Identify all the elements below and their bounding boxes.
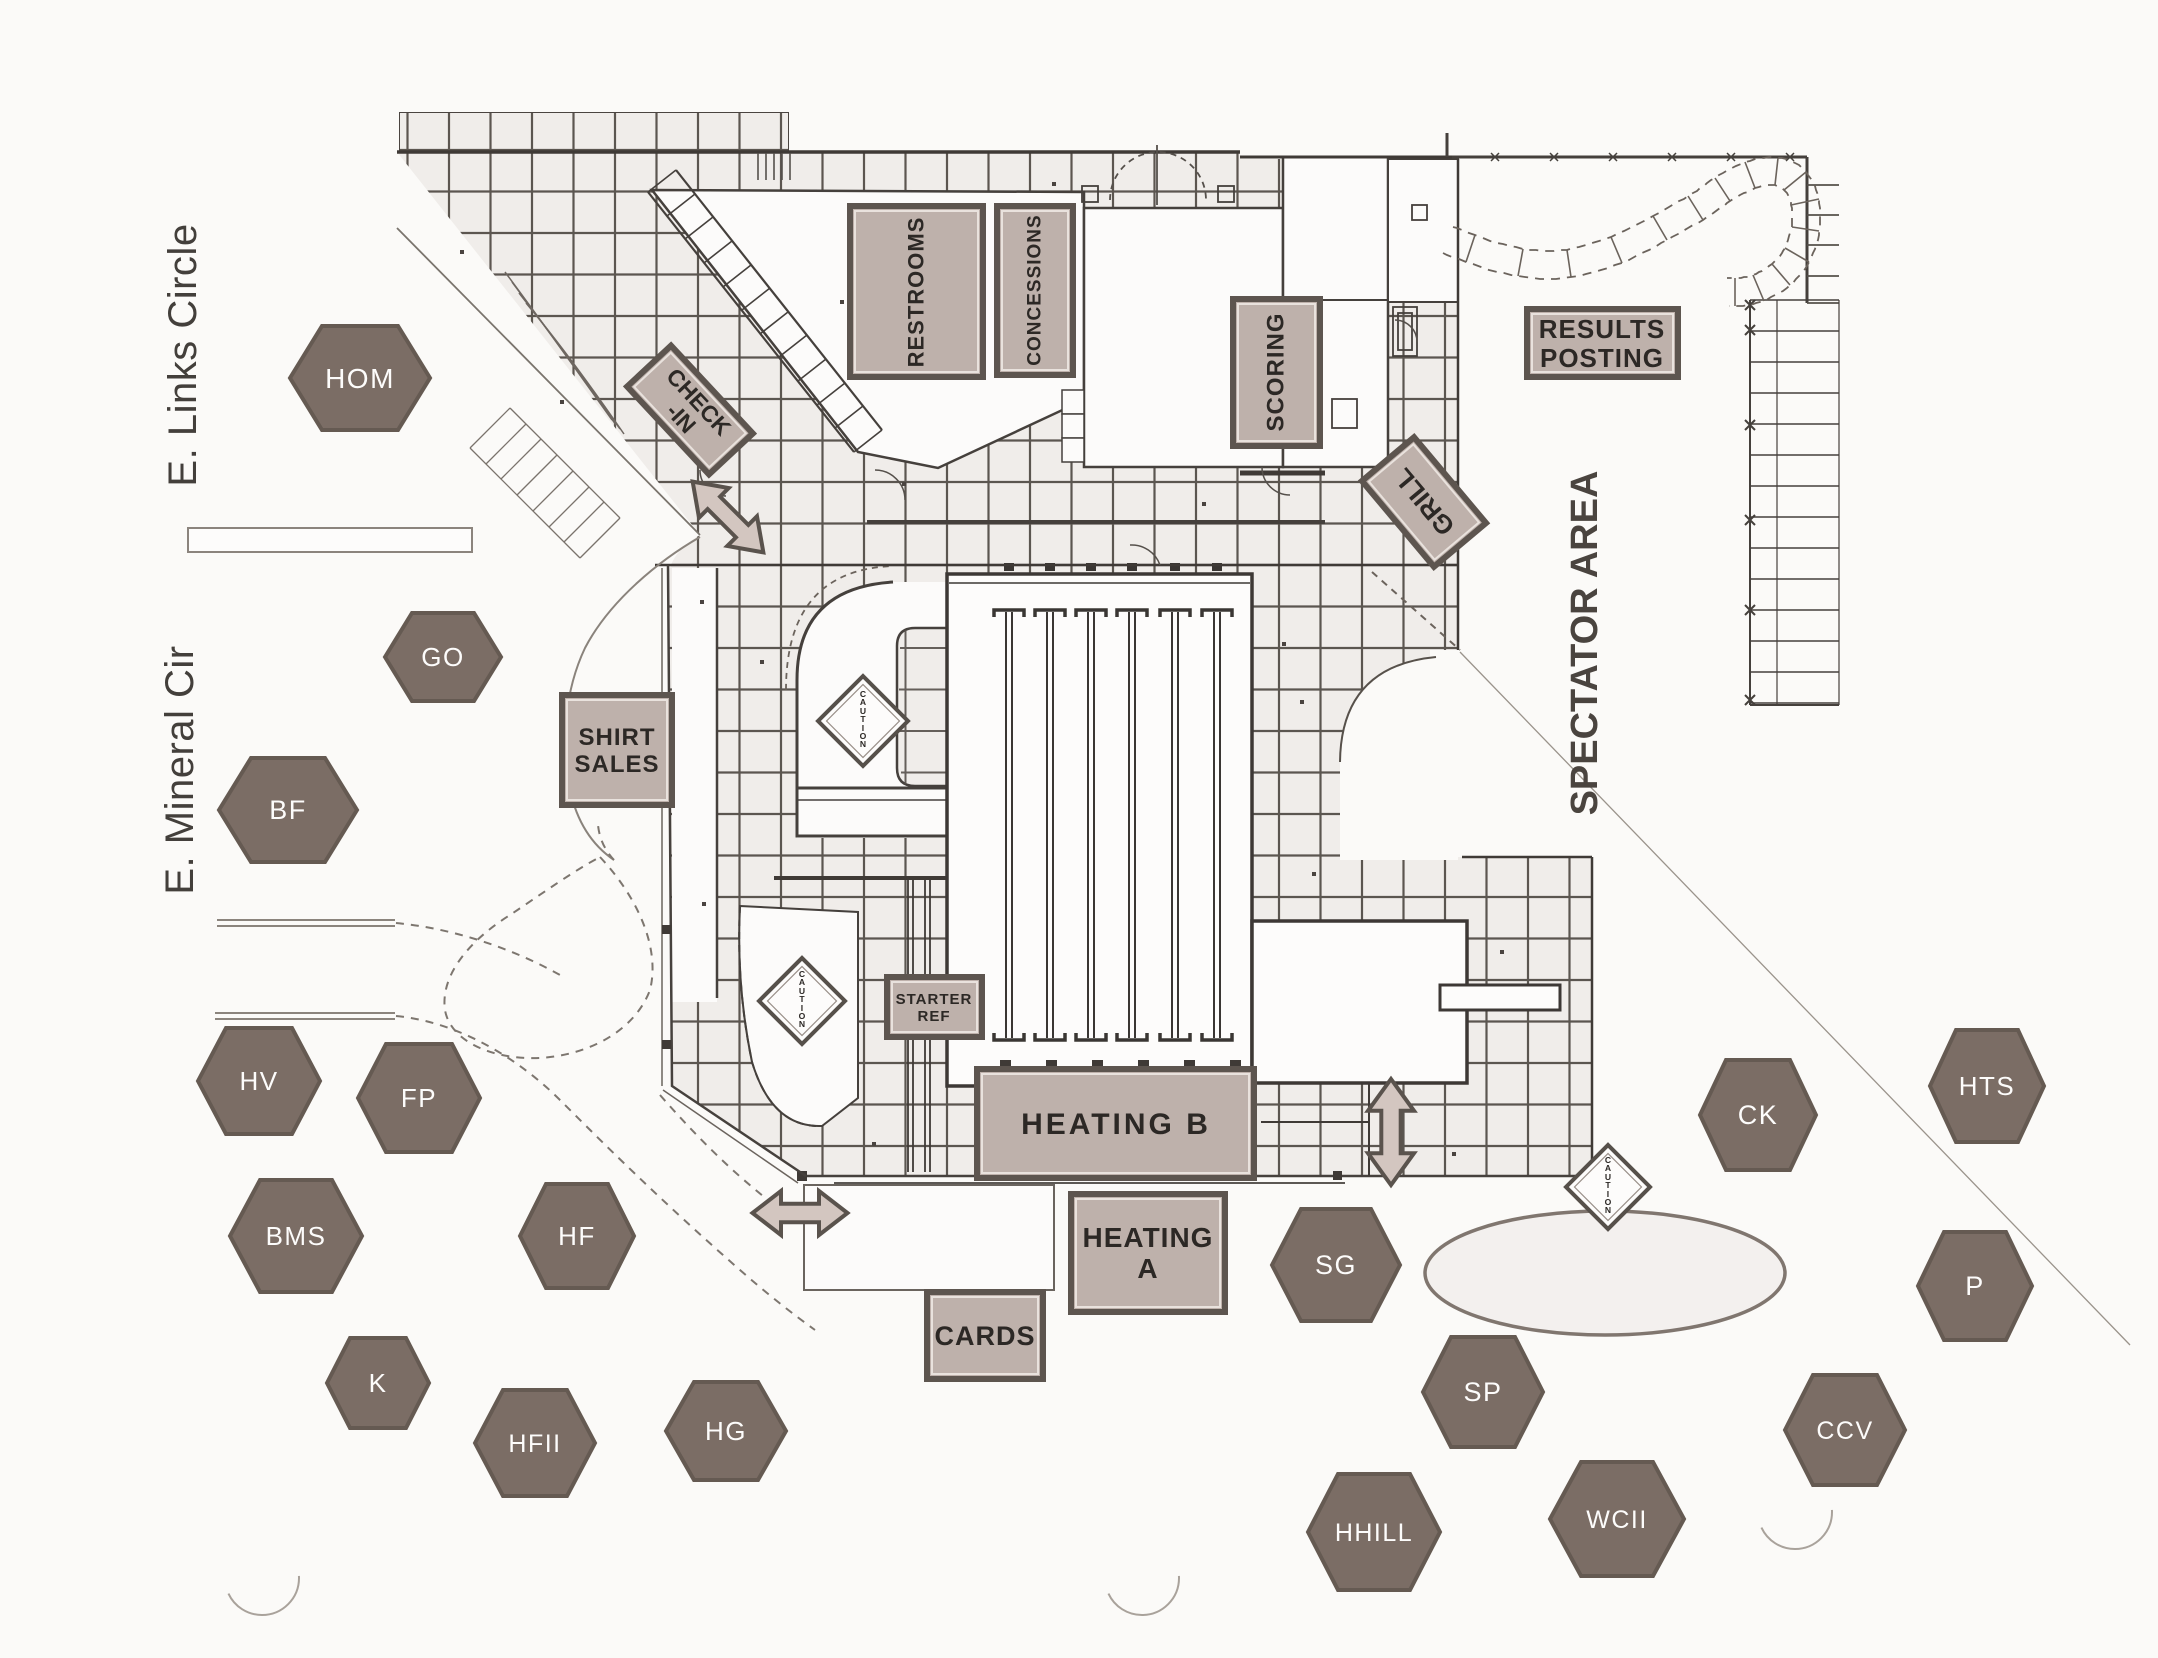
svg-text:HEATING: HEATING (1083, 1222, 1214, 1253)
svg-text:SG: SG (1315, 1250, 1357, 1280)
svg-text:SPECTATOR AREA: SPECTATOR AREA (1564, 471, 1606, 816)
svg-text:N: N (860, 739, 866, 749)
svg-text:CARDS: CARDS (934, 1321, 1035, 1351)
svg-text:HHILL: HHILL (1335, 1519, 1413, 1547)
svg-text:HTS: HTS (1959, 1071, 2016, 1101)
svg-text:SALES: SALES (574, 751, 659, 778)
svg-text:CONCESSIONS: CONCESSIONS (1025, 214, 1046, 365)
svg-text:E. Links Circle: E. Links Circle (161, 223, 205, 486)
svg-text:FP: FP (401, 1083, 437, 1113)
svg-text:SP: SP (1463, 1377, 1502, 1407)
svg-text:A: A (1137, 1253, 1158, 1284)
svg-text:SCORING: SCORING (1263, 312, 1290, 431)
svg-text:P: P (1965, 1271, 1985, 1301)
svg-text:RESULTS: RESULTS (1539, 314, 1665, 344)
svg-text:HFII: HFII (508, 1430, 561, 1458)
svg-text:HF: HF (558, 1221, 596, 1251)
svg-text:K: K (369, 1368, 388, 1398)
svg-text:POSTING: POSTING (1540, 343, 1664, 373)
svg-text:HEATING B: HEATING B (1021, 1108, 1211, 1141)
svg-text:SHIRT: SHIRT (579, 724, 656, 751)
svg-text:HG: HG (705, 1416, 747, 1446)
svg-text:HV: HV (239, 1066, 278, 1096)
svg-text:N: N (799, 1019, 805, 1029)
svg-text:CK: CK (1738, 1100, 1779, 1130)
svg-text:BF: BF (269, 795, 307, 825)
svg-text:E. Mineral Cir: E. Mineral Cir (158, 645, 202, 894)
svg-text:N: N (1605, 1205, 1611, 1215)
svg-text:CCV: CCV (1816, 1417, 1873, 1445)
svg-text:REF: REF (918, 1008, 951, 1025)
svg-text:RESTROOMS: RESTROOMS (904, 217, 929, 368)
svg-text:STARTER: STARTER (896, 991, 973, 1008)
svg-text:BMS: BMS (266, 1221, 327, 1251)
svg-text:GO: GO (421, 642, 464, 672)
svg-text:HOM: HOM (325, 363, 395, 394)
svg-text:WCII: WCII (1586, 1506, 1648, 1534)
